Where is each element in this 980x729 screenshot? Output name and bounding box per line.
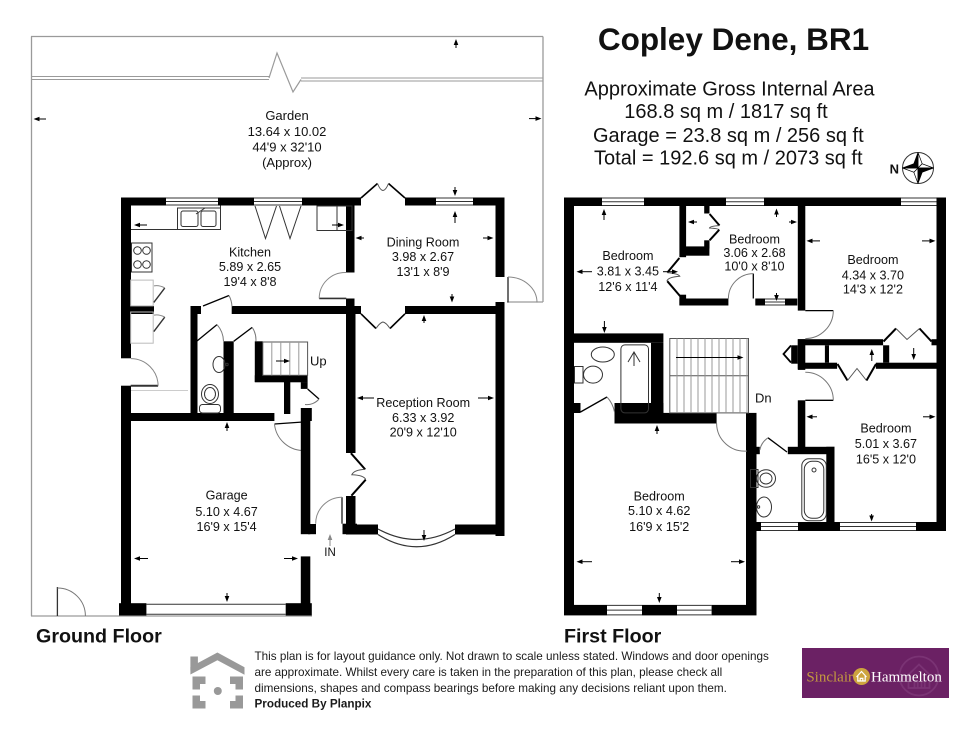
svg-text:Garden: Garden [265, 108, 308, 123]
svg-text:Bedroom: Bedroom [729, 233, 780, 247]
svg-text:16'9 x 15'4: 16'9 x 15'4 [197, 520, 257, 534]
svg-text:dimensions, shapes and compass: dimensions, shapes and compass bearings … [255, 682, 727, 695]
svg-text:168.8 sq m / 1817 sq ft: 168.8 sq m / 1817 sq ft [624, 101, 828, 123]
svg-text:5.10 x 4.62: 5.10 x 4.62 [628, 504, 690, 518]
svg-text:Bedroom: Bedroom [602, 249, 653, 263]
svg-text:Ground Floor: Ground Floor [36, 626, 162, 648]
svg-text:5.89 x 2.65: 5.89 x 2.65 [219, 260, 281, 274]
svg-text:This plan is for layout guidan: This plan is for layout guidance only. N… [255, 650, 769, 663]
svg-text:4.34 x 3.70: 4.34 x 3.70 [842, 268, 904, 282]
svg-text:5.10 x 4.67: 5.10 x 4.67 [195, 505, 257, 519]
svg-text:3.98 x 2.67: 3.98 x 2.67 [392, 250, 454, 264]
svg-text:First Floor: First Floor [564, 626, 662, 648]
svg-text:13.64 x 10.02: 13.64 x 10.02 [248, 124, 327, 139]
svg-text:Approximate Gross Internal Are: Approximate Gross Internal Area [584, 79, 875, 101]
svg-text:(Approx): (Approx) [262, 155, 312, 170]
svg-text:Garage = 23.8 sq m / 256 sq ft: Garage = 23.8 sq m / 256 sq ft [593, 125, 864, 147]
svg-text:Total = 192.6 sq m / 2073 sq f: Total = 192.6 sq m / 2073 sq ft [594, 148, 863, 170]
svg-text:44'9 x 32'10: 44'9 x 32'10 [252, 140, 321, 155]
svg-text:14'3 x 12'2: 14'3 x 12'2 [843, 283, 903, 297]
svg-text:Kitchen: Kitchen [229, 245, 271, 259]
svg-text:Sinclair: Sinclair [806, 670, 853, 686]
svg-text:Up: Up [310, 354, 327, 369]
svg-text:16'9 x 15'2: 16'9 x 15'2 [629, 520, 689, 534]
svg-text:6.33 x 3.92: 6.33 x 3.92 [392, 411, 454, 425]
svg-text:Bedroom: Bedroom [860, 422, 911, 436]
svg-text:3.81 x 3.45: 3.81 x 3.45 [597, 265, 659, 279]
svg-text:Copley Dene, BR1: Copley Dene, BR1 [598, 21, 869, 57]
svg-text:13'1 x 8'9: 13'1 x 8'9 [396, 265, 449, 279]
svg-text:10'0 x 8'10: 10'0 x 8'10 [724, 260, 784, 274]
svg-text:Produced By Planpix: Produced By Planpix [255, 698, 372, 711]
svg-text:12'6 x 11'4: 12'6 x 11'4 [598, 280, 657, 294]
svg-text:3.06 x 2.68: 3.06 x 2.68 [723, 246, 785, 260]
svg-text:Reception Room: Reception Room [376, 396, 470, 410]
svg-text:Bedroom: Bedroom [634, 489, 685, 503]
svg-text:IN: IN [324, 547, 336, 559]
svg-text:Bedroom: Bedroom [847, 253, 898, 267]
svg-text:Dining Room: Dining Room [387, 236, 460, 250]
svg-text:N: N [890, 162, 899, 177]
svg-text:5.01 x 3.67: 5.01 x 3.67 [855, 437, 917, 451]
svg-text:20'9 x 12'10: 20'9 x 12'10 [390, 426, 457, 440]
svg-text:Hammelton: Hammelton [871, 670, 942, 686]
svg-text:Dn: Dn [755, 391, 772, 406]
svg-text:Garage: Garage [206, 489, 248, 503]
svg-text:16'5 x 12'0: 16'5 x 12'0 [856, 452, 916, 466]
svg-text:19'4 x 8'8: 19'4 x 8'8 [223, 275, 276, 289]
svg-text:are approximate. Whilst every: are approximate. Whilst every care is ta… [255, 666, 723, 679]
